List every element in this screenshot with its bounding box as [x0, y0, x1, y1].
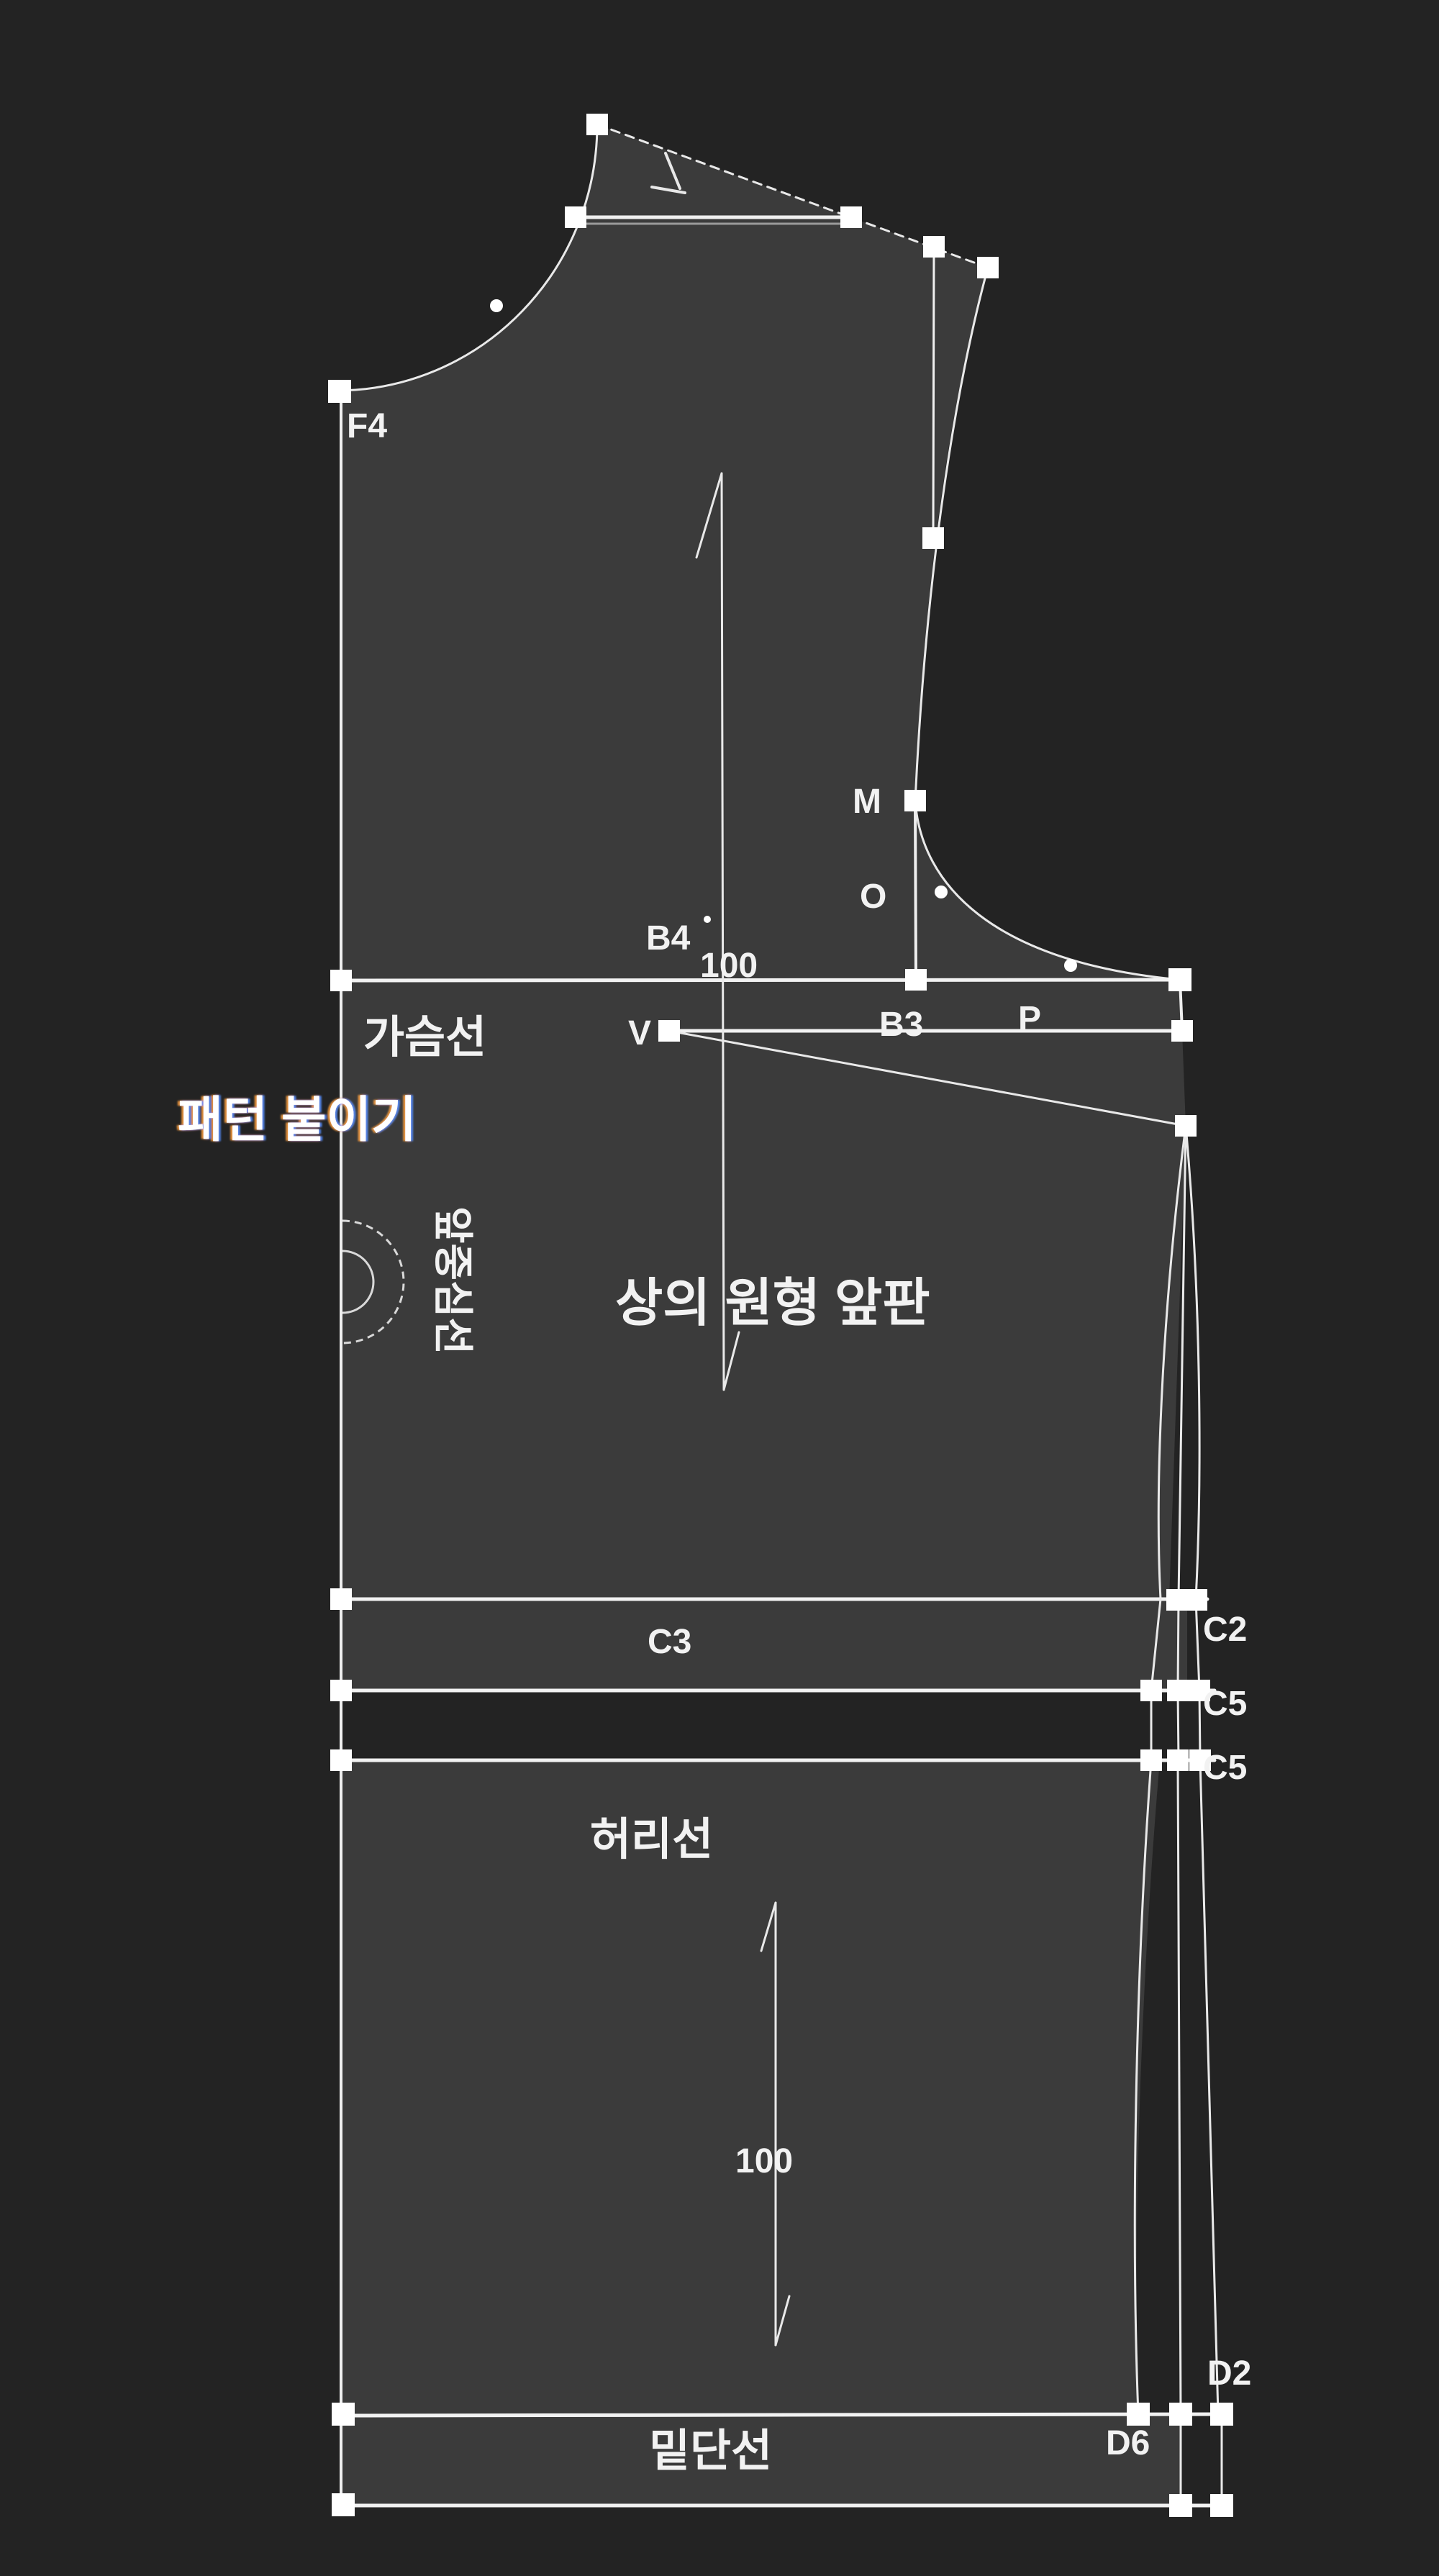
node-shoulder-guide-left[interactable] — [565, 206, 586, 228]
dart-leg-right[interactable] — [1186, 1126, 1199, 1599]
label-chest-line: 가슴선 — [363, 1013, 486, 1062]
node-c3-left-top[interactable] — [330, 1588, 352, 1610]
node-waist-left-top[interactable] — [330, 1749, 352, 1771]
node-c2-b[interactable] — [1186, 1589, 1207, 1611]
node-hem-right[interactable] — [1210, 2403, 1233, 2426]
label-grain-upper: 100 — [700, 947, 758, 985]
node-c5l-a[interactable] — [1140, 1749, 1162, 1771]
node-shoulder-a[interactable] — [923, 236, 945, 258]
c3-band-fill[interactable] — [341, 1599, 1187, 1690]
node-hem-left[interactable] — [332, 2403, 355, 2426]
node-bottom-left[interactable] — [332, 2493, 355, 2516]
node-bottom-right[interactable] — [1210, 2494, 1233, 2517]
label-c5-lower: C5 — [1203, 1749, 1247, 1787]
armhole-dot-2[interactable] — [1064, 959, 1077, 972]
armhole-dot-1[interactable] — [935, 886, 948, 898]
m-b3-guide[interactable] — [915, 801, 916, 980]
node-p-end[interactable] — [1171, 1020, 1193, 1042]
node-neck-apex[interactable] — [586, 114, 608, 135]
label-pattern-title: 상의 원형 앞판 — [615, 1275, 930, 1332]
node-dart-vertex[interactable] — [1175, 1115, 1197, 1137]
label-o: O — [860, 878, 886, 916]
waist-dart-right[interactable] — [1200, 1760, 1218, 2414]
node-f4[interactable] — [328, 380, 351, 403]
b4-dot — [704, 916, 711, 923]
node-bottom-mid[interactable] — [1169, 2494, 1192, 2517]
waist-dart-center[interactable] — [1178, 1760, 1181, 2414]
node-chest-right[interactable] — [1168, 968, 1191, 991]
label-c3: C3 — [648, 1623, 691, 1661]
node-b3[interactable] — [905, 969, 927, 991]
chest-line[interactable] — [341, 980, 1180, 980]
label-b3: B3 — [879, 1006, 923, 1044]
label-b4: B4 — [646, 919, 691, 957]
label-f4: F4 — [347, 407, 387, 445]
hem-line[interactable] — [341, 2414, 1230, 2416]
attach-pattern-tooltip: 패턴 붙이기 — [178, 1093, 417, 1147]
node-c2-a[interactable] — [1166, 1589, 1188, 1611]
node-c5l-b[interactable] — [1167, 1749, 1189, 1771]
label-d2: D2 — [1207, 2354, 1251, 2393]
pattern-canvas[interactable]: F4 M O B4 100 B3 P V 가슴선 상의 원형 앞판 앞중심선 C… — [0, 0, 1439, 2576]
node-shoulder-guide-right[interactable] — [840, 206, 862, 228]
label-center-front: 앞중심선 — [430, 1206, 476, 1355]
node-shoulder-tip[interactable] — [977, 257, 999, 278]
node-chest-left[interactable] — [330, 970, 352, 991]
node-hem-mid[interactable] — [1169, 2403, 1192, 2426]
node-c5u-b[interactable] — [1167, 1680, 1189, 1701]
label-v: V — [628, 1014, 651, 1052]
label-d6: D6 — [1106, 2424, 1150, 2462]
node-d6[interactable] — [1127, 2403, 1150, 2426]
pattern-drawing: F4 M O B4 100 B3 P V 가슴선 상의 원형 앞판 앞중심선 C… — [0, 0, 1439, 2576]
waist-panel-fill[interactable] — [341, 1760, 1160, 2414]
node-c5u-a[interactable] — [1140, 1680, 1162, 1701]
label-c2: C2 — [1203, 1611, 1247, 1649]
armhole-depth-guide[interactable] — [933, 247, 934, 538]
node-m[interactable] — [904, 790, 926, 811]
label-p: P — [1018, 1000, 1041, 1038]
node-v[interactable] — [658, 1020, 680, 1042]
node-c[interactable] — [922, 527, 944, 549]
label-waist-line: 허리선 — [590, 1815, 713, 1865]
neck-curve-dot[interactable] — [490, 299, 503, 312]
label-hem-line: 밑단선 — [649, 2426, 772, 2476]
label-grain-lower: 100 — [735, 2142, 793, 2180]
label-c5-upper: C5 — [1203, 1685, 1247, 1723]
node-c3-left-bottom[interactable] — [330, 1680, 352, 1701]
upper-bodice-fill[interactable] — [341, 124, 1180, 980]
label-m: M — [853, 783, 881, 821]
